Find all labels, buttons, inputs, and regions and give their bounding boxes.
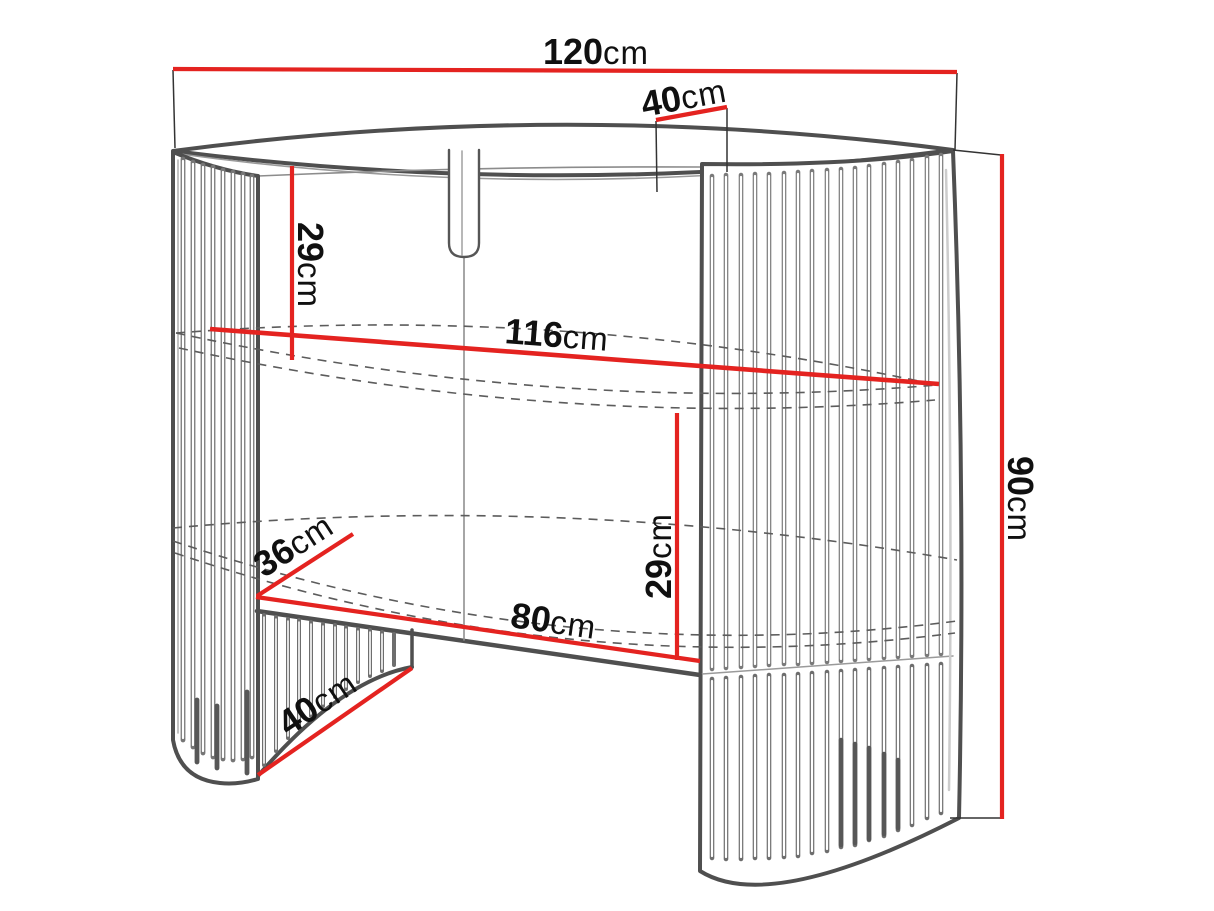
label-height-top-section: 29cm: [290, 222, 331, 308]
left-slatted-column: [173, 152, 258, 784]
label-height-total: 90cm: [1000, 456, 1041, 542]
label-width-opening: 80cm: [508, 594, 599, 647]
handle: [449, 150, 479, 257]
label-width-total: 120cm: [543, 31, 649, 72]
dimension-diagram: 120cm 40cm 29cm 116cm 90cm 29cm 36cm 80c…: [0, 0, 1214, 911]
diagram-canvas: 120cm 40cm 29cm 116cm 90cm 29cm 36cm 80c…: [0, 0, 1214, 911]
label-height-shelf-section: 29cm: [638, 513, 679, 599]
label-depth-top: 40cm: [638, 69, 730, 125]
furniture-drawing: [173, 70, 1001, 885]
label-depth-base: 40cm: [270, 662, 364, 744]
right-slatted-column: [700, 151, 961, 885]
label-width-inner: 116cm: [504, 310, 611, 359]
